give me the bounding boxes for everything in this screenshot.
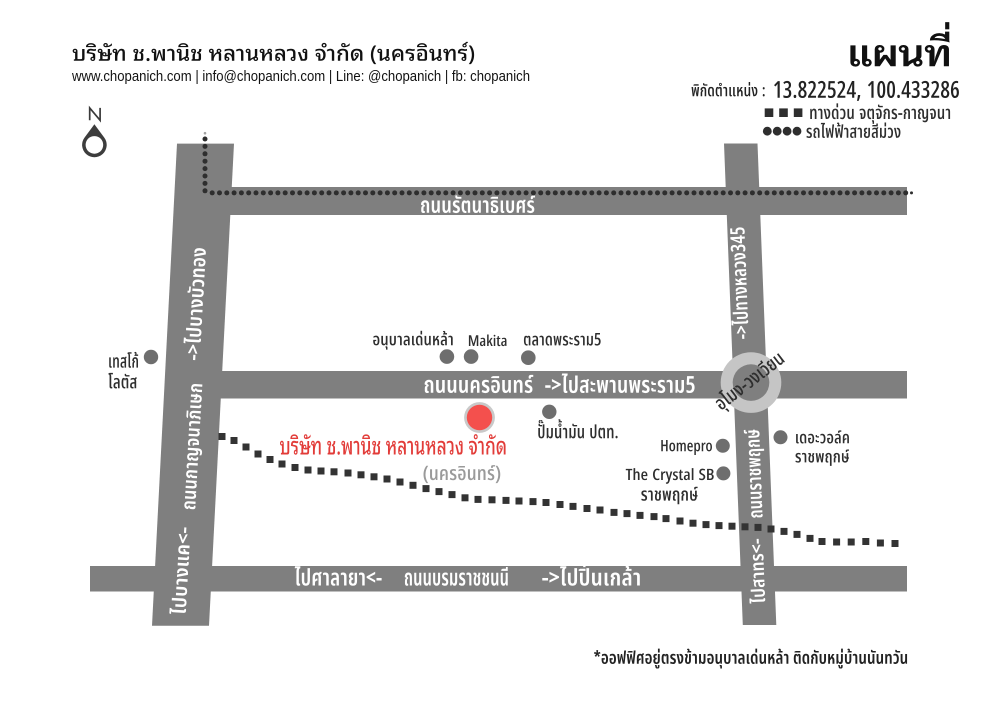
svg-text:www.chopanich.com | info@chopa: www.chopanich.com | info@chopanich.com |… [71, 69, 530, 85]
